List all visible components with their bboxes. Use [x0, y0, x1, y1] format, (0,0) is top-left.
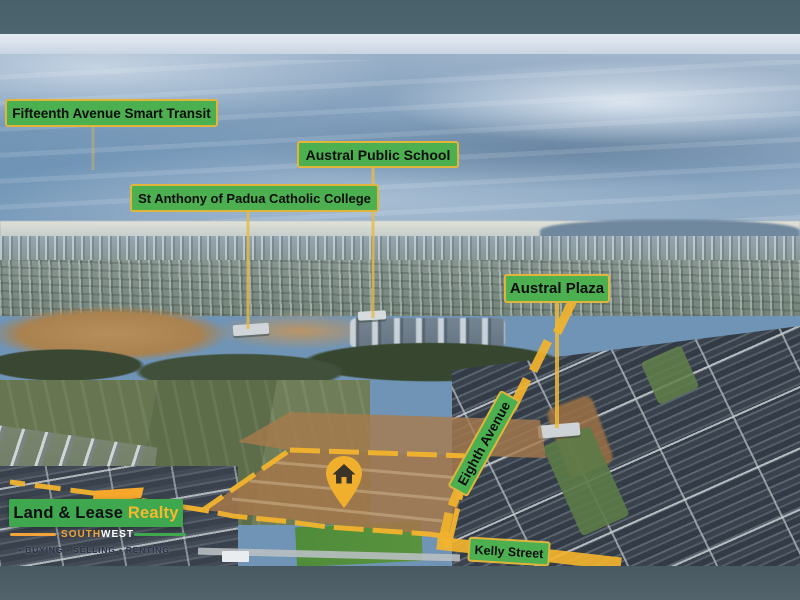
label-fifteenth-avenue-smart-transit: Fifteenth Avenue Smart Transit [5, 99, 218, 127]
logo-rule-right [134, 533, 186, 536]
logo-tagline: • BUYING • SELLING • RENTING [18, 545, 170, 555]
agency-logo: Land & Lease Realty [9, 499, 183, 527]
pin-house-door [342, 477, 347, 484]
label-kelly-street: Kelly Street [467, 537, 550, 567]
label-austral-public-school: Austral Public School [297, 141, 459, 168]
logo-brand-name: Land & Lease [13, 504, 127, 523]
logo-brand-realty: Realty [128, 504, 179, 523]
label-st-anthony-catholic-college: St Anthony of Padua Catholic College [130, 184, 379, 212]
logo-region-south: SOUTH [61, 529, 101, 540]
logo-region-west: WEST [101, 529, 134, 540]
aerial-property-map: Fifteenth Avenue Smart Transit Austral P… [0, 0, 800, 600]
label-austral-plaza: Austral Plaza [504, 274, 610, 303]
bottom-dark-bar [0, 566, 800, 600]
